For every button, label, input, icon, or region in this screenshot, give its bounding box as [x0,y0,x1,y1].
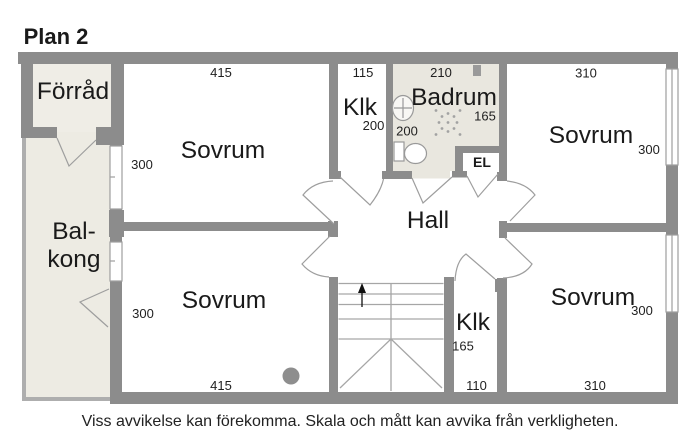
svg-text:Sovrum: Sovrum [549,122,633,149]
svg-text:EL: EL [473,154,491,170]
svg-text:Hall: Hall [407,207,449,234]
svg-text:165: 165 [474,109,496,124]
svg-text:Sovrum: Sovrum [551,284,635,311]
svg-text:kong: kong [47,246,100,273]
svg-text:300: 300 [638,142,660,157]
svg-text:Badrum: Badrum [411,84,497,111]
svg-text:210: 210 [430,65,452,80]
svg-text:415: 415 [210,65,232,80]
svg-text:Sovrum: Sovrum [181,137,265,164]
svg-text:200: 200 [363,118,385,133]
svg-text:Viss avvikelse kan förekomma.: Viss avvikelse kan förekomma. Skala och … [82,412,619,430]
svg-text:Förråd: Förråd [37,78,109,105]
svg-text:200: 200 [396,124,418,139]
svg-text:300: 300 [631,303,653,318]
svg-text:110: 110 [466,378,487,393]
svg-text:115: 115 [353,65,374,80]
svg-text:Klk: Klk [343,94,378,121]
svg-text:310: 310 [584,378,606,393]
svg-text:300: 300 [132,306,154,321]
svg-text:Sovrum: Sovrum [182,287,266,314]
svg-text:165: 165 [452,339,474,354]
svg-text:Klk: Klk [456,309,491,336]
svg-text:310: 310 [575,66,597,81]
svg-text:Bal-: Bal- [52,218,96,245]
svg-text:300: 300 [131,157,153,172]
svg-text:Plan 2: Plan 2 [24,24,89,49]
svg-text:415: 415 [210,378,232,393]
